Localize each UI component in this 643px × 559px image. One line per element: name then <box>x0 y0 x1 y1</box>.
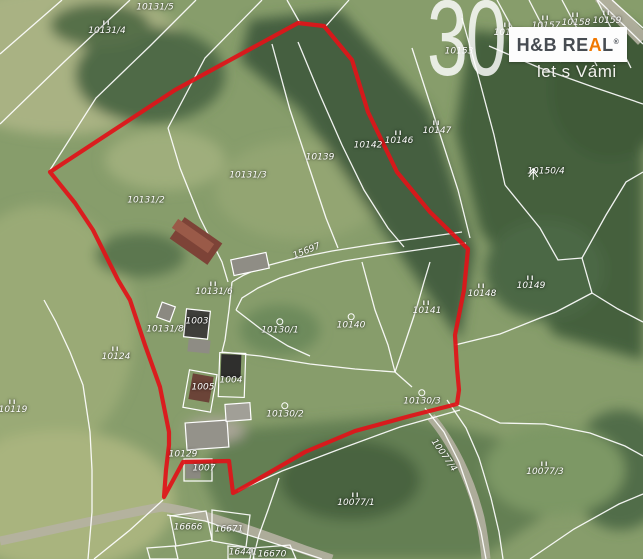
logo-accent-letter: A <box>589 35 603 55</box>
building <box>184 309 211 339</box>
building <box>188 373 213 402</box>
map-canvas <box>0 0 643 559</box>
hb-real-logo-text: H&B REAL® <box>517 36 620 54</box>
aerial-cadastral-map[interactable]: 10131/5II10131/410153II10156II10157II101… <box>0 0 643 559</box>
building <box>221 354 242 378</box>
building <box>186 464 201 479</box>
logo-part1: H&B RE <box>517 35 589 55</box>
building <box>187 338 210 353</box>
building <box>185 420 229 450</box>
logo-part2: L <box>602 35 614 55</box>
building <box>225 403 251 422</box>
terrain-layer <box>0 0 643 559</box>
anniversary-watermark: 30 <box>427 0 505 92</box>
registered-mark: ® <box>614 39 620 46</box>
hb-real-logo: H&B REAL® <box>509 27 627 62</box>
logo-slogan: let s Vámi <box>537 62 617 82</box>
